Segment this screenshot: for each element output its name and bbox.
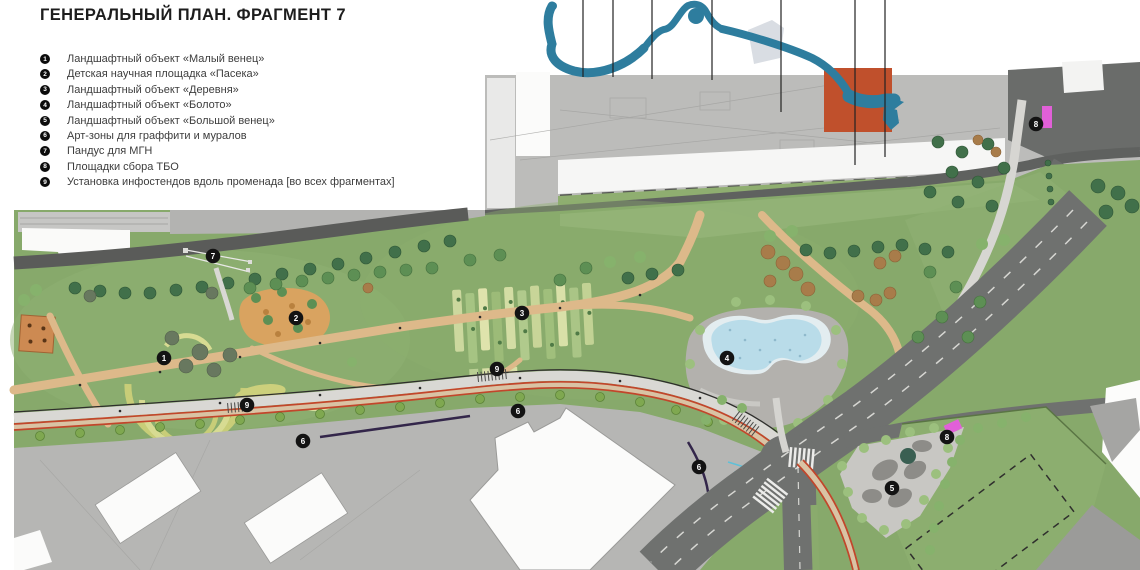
legend-item-number: 6 <box>40 131 50 141</box>
legend-item-label: Площадки сбора ТБО <box>67 161 179 173</box>
legend-item: 1Ландшафтный объект «Малый венец» <box>40 53 395 68</box>
legend-item-label: Детская научная площадка «Пасека» <box>67 68 259 80</box>
svg-text:2: 2 <box>294 314 299 323</box>
legend-item-label: Ландшафтный объект «Деревня» <box>67 84 239 96</box>
svg-text:1: 1 <box>162 354 167 363</box>
legend-list: 1Ландшафтный объект «Малый венец»2Детска… <box>40 53 395 192</box>
legend-item-number: 2 <box>40 69 50 79</box>
legend-item-label: Ландшафтный объект «Болото» <box>67 99 232 111</box>
legend-item: 4Ландшафтный объект «Болото» <box>40 99 395 114</box>
svg-text:6: 6 <box>516 407 521 416</box>
svg-text:9: 9 <box>245 401 250 410</box>
page-title: ГЕНЕРАЛЬНЫЙ ПЛАН. ФРАГМЕНТ 7 <box>40 6 346 25</box>
legend-item: 6Арт-зоны для граффити и муралов <box>40 130 395 145</box>
waste-area-highlight <box>1042 106 1052 128</box>
svg-text:5: 5 <box>890 484 895 493</box>
plan-marker-6: 6 <box>692 460 707 475</box>
legend-item: 3Ландшафтный объект «Деревня» <box>40 84 395 99</box>
legend-item-number: 5 <box>40 116 50 126</box>
plan-marker-6: 6 <box>511 404 526 419</box>
legend-item-number: 8 <box>40 162 50 172</box>
svg-text:9: 9 <box>495 365 500 374</box>
plan-marker-8: 8 <box>1029 117 1044 132</box>
plan-marker-6: 6 <box>296 434 311 449</box>
legend-item: 8Площадки сбора ТБО <box>40 161 395 176</box>
plan-marker-5: 5 <box>885 481 900 496</box>
legend-item-label: Пандус для МГН <box>67 145 152 157</box>
slide-page: 1234566678899 ГЕНЕРАЛЬНЫЙ ПЛАН. ФРАГМЕНТ… <box>0 0 1140 570</box>
plan-marker-3: 3 <box>515 306 530 321</box>
legend-item-label: Установка инфостендов вдоль променада [в… <box>67 176 395 188</box>
svg-text:6: 6 <box>301 437 306 446</box>
plan-marker-2: 2 <box>289 311 304 326</box>
legend-item-number: 3 <box>40 85 50 95</box>
legend-item-label: Ландшафтный объект «Малый венец» <box>67 53 264 65</box>
legend-item: 2Детская научная площадка «Пасека» <box>40 68 395 83</box>
svg-text:6: 6 <box>697 463 702 472</box>
legend-item-number: 7 <box>40 146 50 156</box>
svg-text:3: 3 <box>520 309 525 318</box>
legend-item: 5Ландшафтный объект «Большой венец» <box>40 115 395 130</box>
svg-text:4: 4 <box>725 354 730 363</box>
plan-marker-4: 4 <box>720 351 735 366</box>
legend-item: 9Установка инфостендов вдоль променада [… <box>40 176 395 191</box>
plan-marker-7: 7 <box>206 249 221 264</box>
svg-text:8: 8 <box>1034 120 1039 129</box>
legend-item-number: 9 <box>40 177 50 187</box>
svg-text:7: 7 <box>211 252 216 261</box>
legend-item-label: Арт-зоны для граффити и муралов <box>67 130 247 142</box>
svg-text:8: 8 <box>945 433 950 442</box>
legend-item-number: 1 <box>40 54 50 64</box>
legend-item-label: Ландшафтный объект «Большой венец» <box>67 115 275 127</box>
plan-marker-9: 9 <box>490 362 505 377</box>
plan-marker-9: 9 <box>240 398 255 413</box>
legend-item: 7Пандус для МГН <box>40 145 395 160</box>
plan-marker-1: 1 <box>157 351 172 366</box>
legend-item-number: 4 <box>40 100 50 110</box>
plan-marker-8: 8 <box>940 430 955 445</box>
